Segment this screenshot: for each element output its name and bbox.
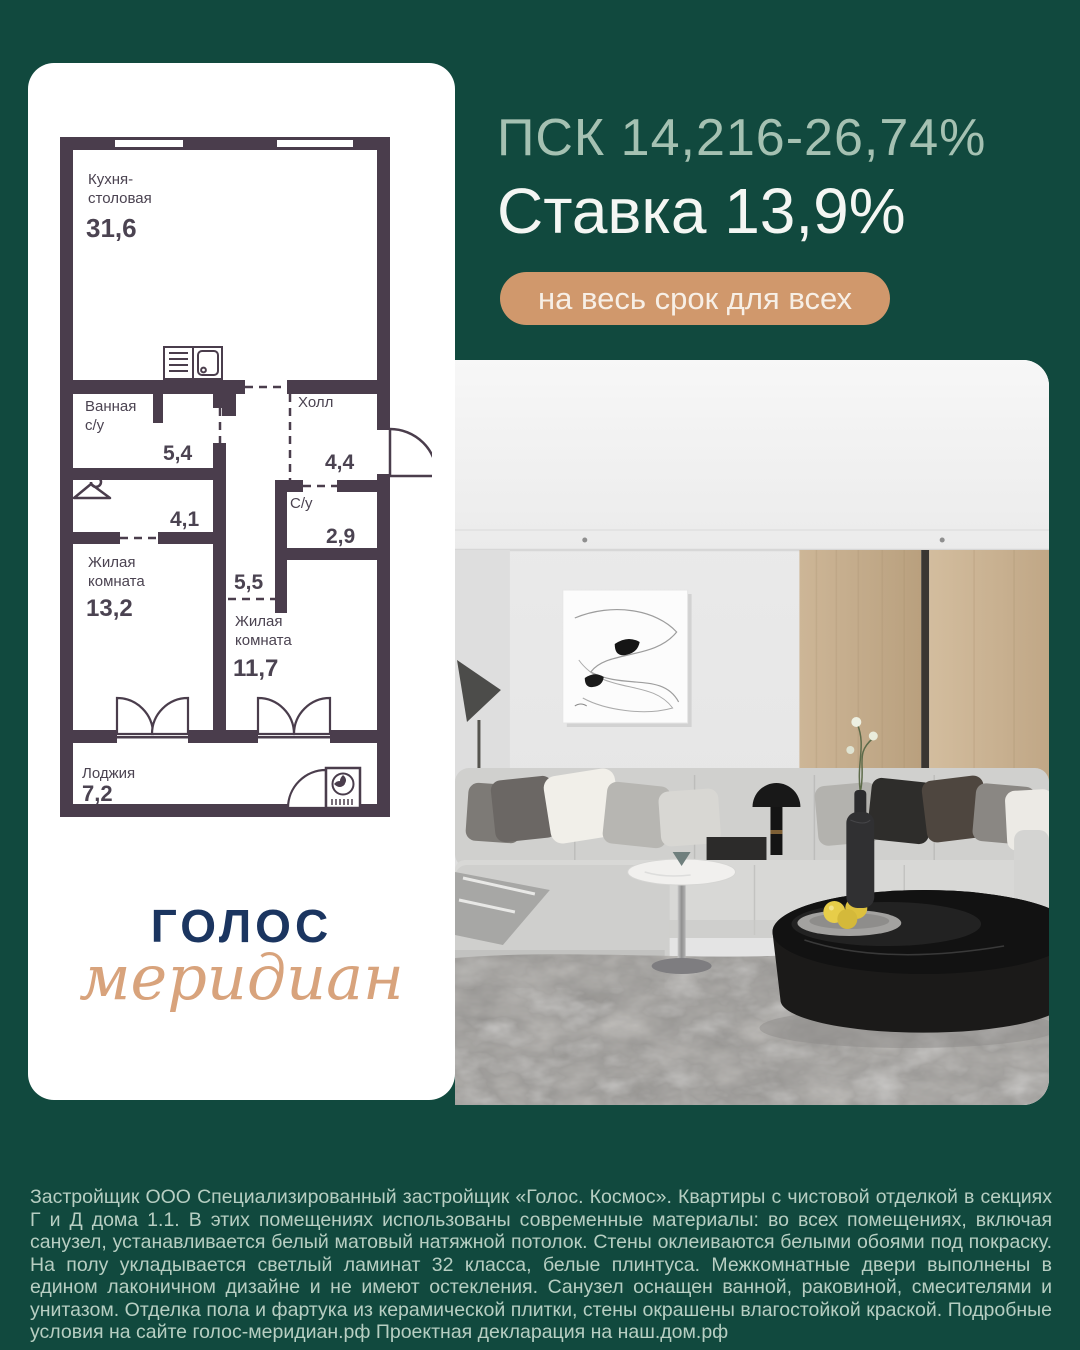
living2-label-2: комната (235, 632, 292, 649)
hall-area: 4,4 (325, 451, 355, 474)
kitchen-label-1: Кухня- (88, 171, 133, 188)
loggia-area: 7,2 (82, 781, 113, 806)
psk-rate-line: ПСК 14,216-26,74% (497, 108, 1057, 168)
offer-block: ПСК 14,216-26,74% Ставка 13,9% на весь с… (497, 108, 1057, 325)
ad-poster: Кухня- столовая 31,6 Ванная с/у 5,4 Холл… (0, 0, 1080, 1350)
bath-area: 5,4 (163, 442, 193, 465)
dashed-openings (120, 387, 337, 599)
kitchen-label-2: столовая (88, 190, 152, 207)
legal-disclaimer: Застройщик ООО Специализированный застро… (30, 1186, 1052, 1344)
hanger-icon (74, 477, 110, 498)
bath-label-2: с/у (85, 417, 105, 434)
sink-stove-icon (164, 347, 222, 379)
floorplan-card: Кухня- столовая 31,6 Ванная с/у 5,4 Холл… (28, 63, 455, 1100)
living1-label-2: комната (88, 573, 145, 590)
photo-ceiling (455, 360, 1049, 550)
term-badge: на весь срок для всех (500, 272, 890, 325)
living1-area: 13,2 (86, 595, 133, 622)
loggia-door-arc (288, 770, 326, 808)
corridor-area: 5,5 (234, 571, 264, 594)
loggia-label: Лоджия (82, 765, 135, 782)
su-label: С/у (290, 495, 313, 512)
floor-plan: Кухня- столовая 31,6 Ванная с/у 5,4 Холл… (60, 137, 432, 817)
kitchen-area: 31,6 (86, 213, 137, 243)
interior-photo (455, 360, 1049, 1105)
coffee-table (759, 890, 1049, 1048)
living2-area: 11,7 (233, 655, 278, 682)
hall-label: Холл (298, 394, 333, 411)
brand-logo: ГОЛОС меридиан (28, 899, 455, 1009)
rate-headline: Ставка 13,9% (497, 174, 1057, 248)
logo-meridian: меридиан (28, 947, 455, 1009)
entrance-door-arc (390, 429, 432, 476)
window-glyphs (115, 137, 390, 477)
living1-label-1: Жилая (88, 554, 135, 571)
su-area: 2,9 (326, 525, 355, 548)
wall-artwork (563, 590, 692, 727)
wardrobe-area: 4,1 (170, 508, 200, 531)
bath-label-1: Ванная (85, 398, 136, 415)
fan-icon (326, 768, 360, 808)
wood-panel (799, 550, 1049, 805)
interior-photo-art (455, 360, 1049, 1105)
living2-label-1: Жилая (235, 613, 282, 630)
